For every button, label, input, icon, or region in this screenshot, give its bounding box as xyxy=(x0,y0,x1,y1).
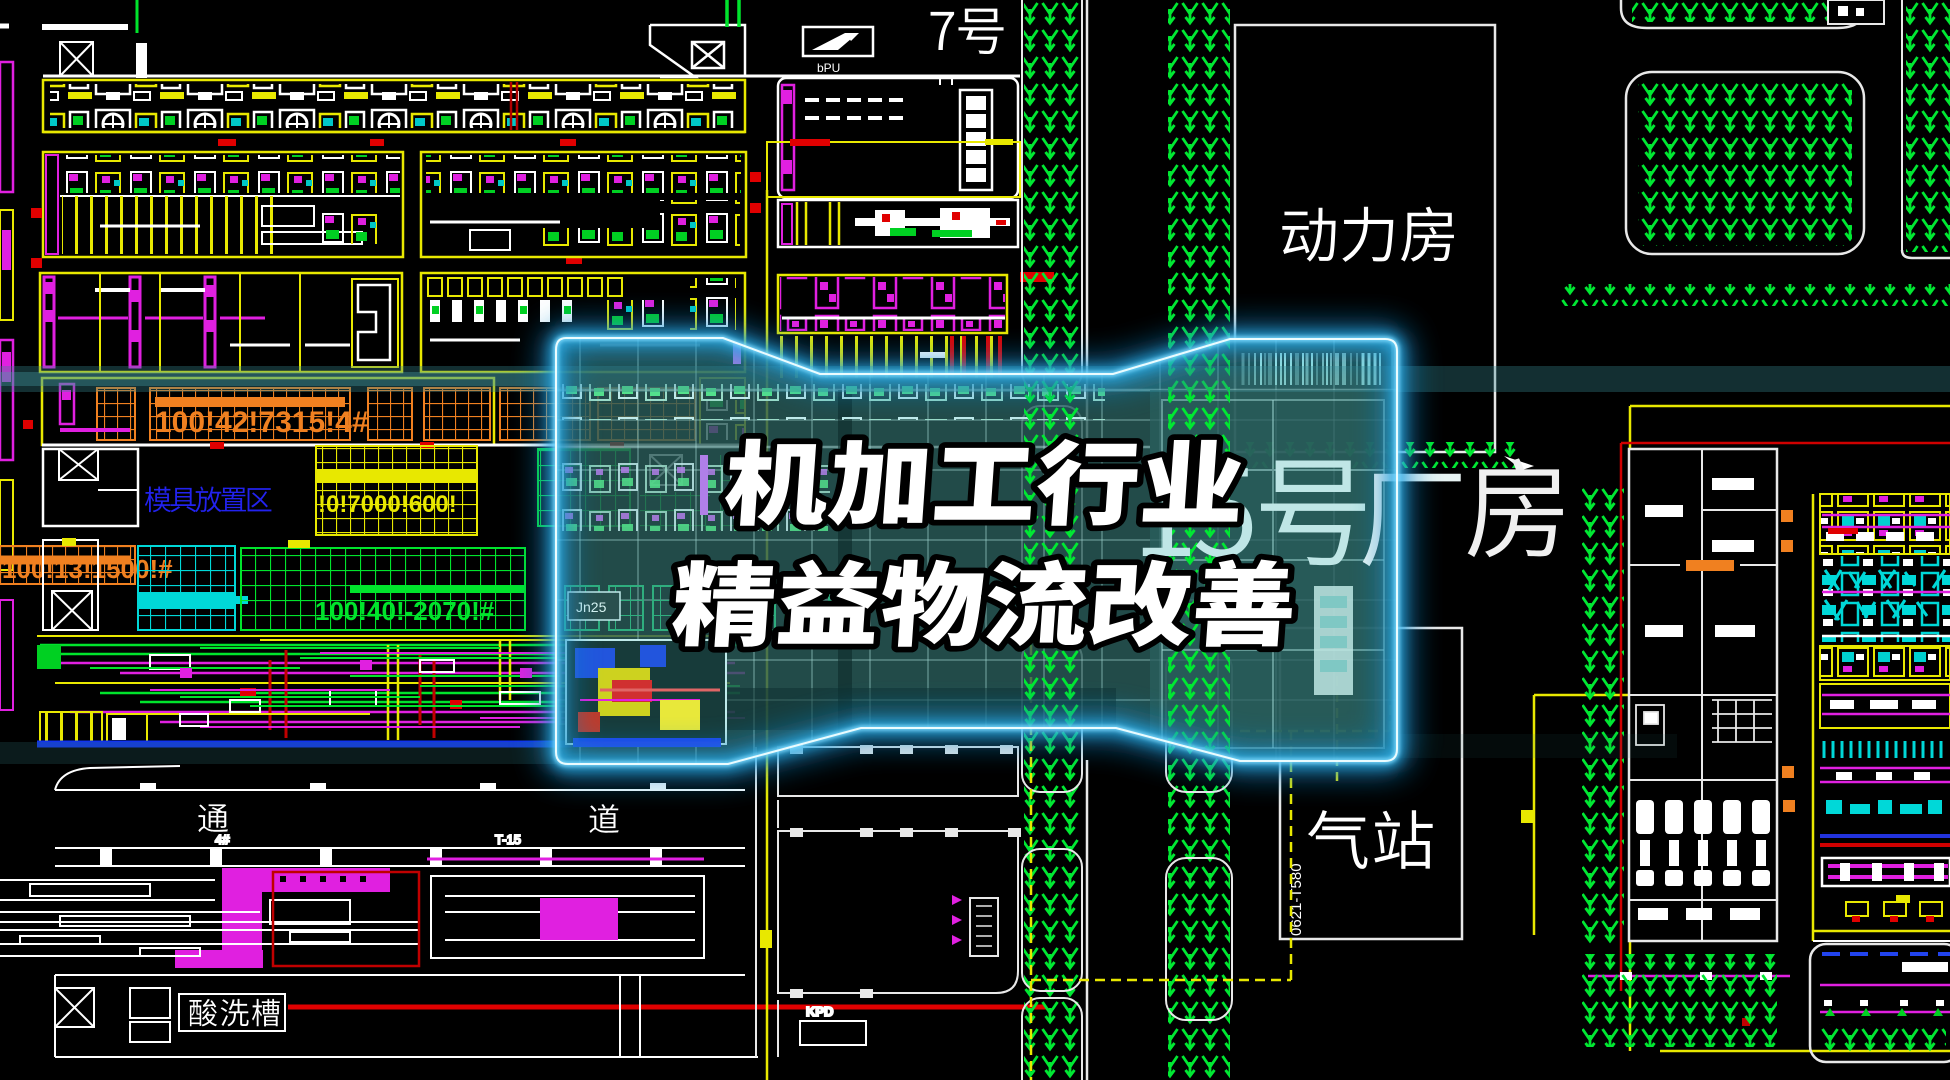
svg-text:100!42!7315!4#: 100!42!7315!4# xyxy=(155,406,369,439)
svg-text:4#: 4# xyxy=(215,832,230,847)
svg-text:KPD: KPD xyxy=(806,1004,833,1019)
svg-text:bPU: bPU xyxy=(817,61,840,75)
svg-text:Jn25: Jn25 xyxy=(576,599,607,615)
svg-text:100!40!-2070!#: 100!40!-2070!# xyxy=(315,596,495,626)
svg-text:!0!7000!600!: !0!7000!600! xyxy=(318,491,457,518)
svg-text:T-15: T-15 xyxy=(495,832,521,847)
